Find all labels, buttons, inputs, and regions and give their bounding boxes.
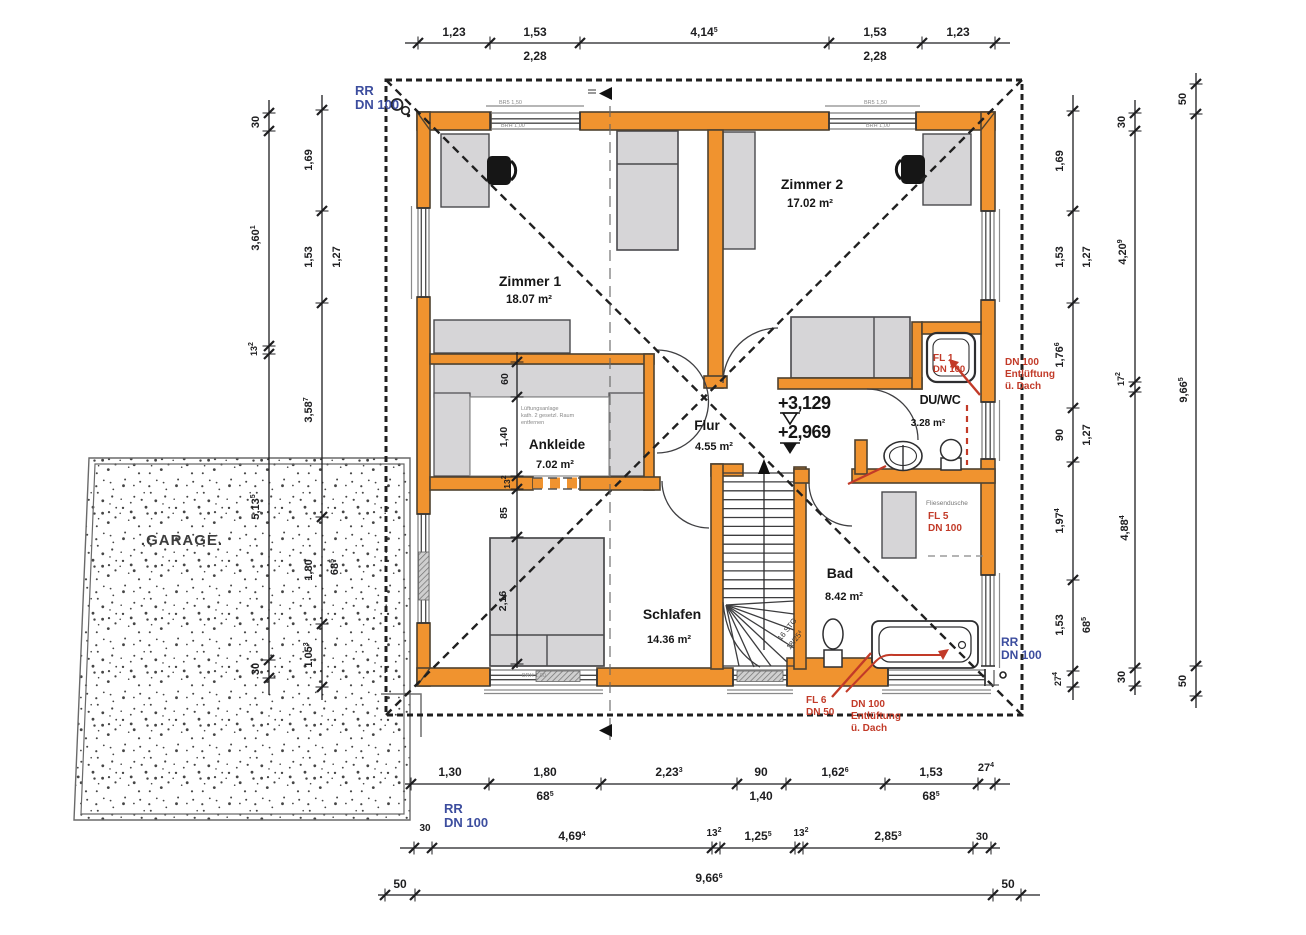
svg-text:BRH 1,00: BRH 1,00 [522,673,546,679]
svg-text:2,233: 2,233 [655,765,682,779]
svg-text:ü. Dach: ü. Dach [851,723,887,734]
svg-text:DN 50: DN 50 [806,707,835,718]
svg-text:1,53: 1,53 [863,25,887,39]
svg-text:30: 30 [250,663,262,675]
svg-text:1,53: 1,53 [523,25,547,39]
svg-text:+2,969: +2,969 [778,422,831,442]
svg-text:1,626: 1,626 [821,765,848,779]
svg-text:30: 30 [976,831,988,843]
svg-text:1,27: 1,27 [331,246,343,267]
svg-text:BR5 1,50: BR5 1,50 [864,100,887,106]
svg-text:1,80: 1,80 [533,765,557,779]
svg-text:RR: RR [1001,635,1019,649]
svg-text:Entlüftung: Entlüftung [851,711,901,722]
svg-text:RR: RR [444,801,463,816]
svg-text:Zimmer 2: Zimmer 2 [781,176,843,192]
svg-text:1,53: 1,53 [919,765,943,779]
svg-text:50: 50 [1001,877,1015,891]
svg-text:17.02 m²: 17.02 m² [787,198,833,210]
svg-text:.GARAGE.: .GARAGE. [141,532,223,549]
svg-text:4.55 m²: 4.55 m² [695,441,733,453]
svg-text:DU/WC: DU/WC [920,393,961,407]
svg-text:entfernen: entfernen [521,420,544,426]
svg-text:4,694: 4,694 [558,829,585,843]
svg-text:2,853: 2,853 [874,829,901,843]
svg-text:DN 100: DN 100 [1001,648,1042,662]
svg-text:DN 100: DN 100 [928,523,962,534]
svg-text:1,53: 1,53 [1054,614,1066,635]
svg-text:85: 85 [498,507,510,519]
svg-text:1,255: 1,255 [744,829,771,843]
svg-text:1,27: 1,27 [1081,246,1093,267]
svg-text:ü. Dach: ü. Dach [1005,381,1041,392]
svg-text:1,69: 1,69 [303,149,315,170]
svg-text:1,23: 1,23 [442,25,466,39]
svg-text:4,145: 4,145 [690,25,717,39]
svg-text:Schlafen: Schlafen [643,606,701,622]
svg-text:Entlüftung: Entlüftung [1005,369,1055,380]
svg-text:Lüftungsanlage: Lüftungsanlage [521,406,559,412]
svg-text:1,40: 1,40 [498,427,510,448]
svg-text:14.36 m²: 14.36 m² [647,634,691,646]
svg-text:DN 100: DN 100 [933,364,965,375]
svg-text:BRH 1,00: BRH 1,00 [866,123,890,129]
svg-text:90: 90 [1054,429,1066,441]
svg-text:1,27: 1,27 [1081,424,1093,445]
svg-text:1,40: 1,40 [749,789,773,803]
svg-text:FL 6: FL 6 [806,695,827,706]
svg-text:9,666: 9,666 [695,871,722,885]
svg-text:FL 1: FL 1 [933,353,954,364]
svg-text:2,16: 2,16 [497,591,509,612]
svg-text:+3,129: +3,129 [778,393,831,413]
svg-text:3.28 m²: 3.28 m² [911,418,946,429]
svg-text:50: 50 [1177,675,1189,687]
svg-text:30: 30 [1116,116,1128,128]
svg-text:Ankleide: Ankleide [529,437,586,452]
svg-text:7.02 m²: 7.02 m² [536,459,574,471]
svg-text:90: 90 [754,765,768,779]
svg-text:DN 100: DN 100 [355,97,399,112]
svg-text:1,23: 1,23 [946,25,970,39]
svg-text:18.07 m²: 18.07 m² [506,294,552,306]
svg-text:DN 100: DN 100 [444,815,488,830]
svg-text:2,28: 2,28 [523,49,547,63]
svg-text:2,28: 2,28 [863,49,887,63]
svg-text:Bad: Bad [827,565,853,581]
svg-text:DN 100: DN 100 [851,699,885,710]
svg-text:BR5 1,50: BR5 1,50 [499,100,522,106]
svg-text:1,53: 1,53 [1054,246,1066,267]
svg-text:1,53: 1,53 [303,246,315,267]
svg-text:30: 30 [250,116,262,128]
svg-text:Zimmer 1: Zimmer 1 [499,273,561,289]
svg-text:kath. 2 gesetzl. Raum: kath. 2 gesetzl. Raum [521,413,575,419]
svg-text:50: 50 [1177,93,1189,105]
svg-text:Flur: Flur [694,418,720,433]
svg-text:50: 50 [393,877,407,891]
svg-text:DN 100: DN 100 [1005,357,1039,368]
svg-text:1,30: 1,30 [438,765,462,779]
svg-text:BRH 1,00: BRH 1,00 [501,123,525,129]
svg-text:1,80: 1,80 [303,559,315,580]
svg-text:1,69: 1,69 [1054,150,1066,171]
svg-text:60: 60 [499,373,511,385]
svg-text:30: 30 [419,823,431,834]
svg-text:FL 5: FL 5 [928,511,949,522]
svg-text:Fliesendusche: Fliesendusche [926,500,968,507]
svg-text:30: 30 [1116,671,1128,683]
svg-text:RR: RR [355,83,374,98]
svg-text:8.42 m²: 8.42 m² [825,591,863,603]
